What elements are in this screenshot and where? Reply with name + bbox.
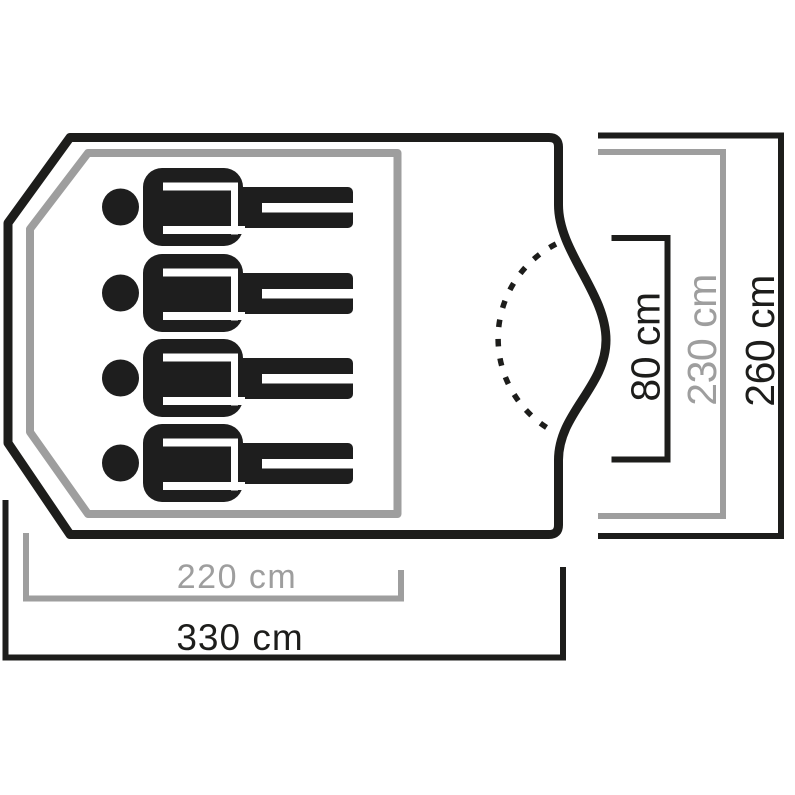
outer-width-label: 330 cm xyxy=(176,617,303,658)
inner-depth-label: 230 cm xyxy=(679,274,725,405)
inner-width-label: 220 cm xyxy=(177,558,298,596)
outer-depth-label: 260 cm xyxy=(737,275,783,406)
door-width-label: 80 cm xyxy=(623,292,669,401)
floorplan-canvas: 220 cm 330 cm 80 cm 230 cm 260 cm xyxy=(0,0,795,795)
tent-floorplan-diagram: 220 cm 330 cm 80 cm 230 cm 260 cm xyxy=(0,0,795,795)
